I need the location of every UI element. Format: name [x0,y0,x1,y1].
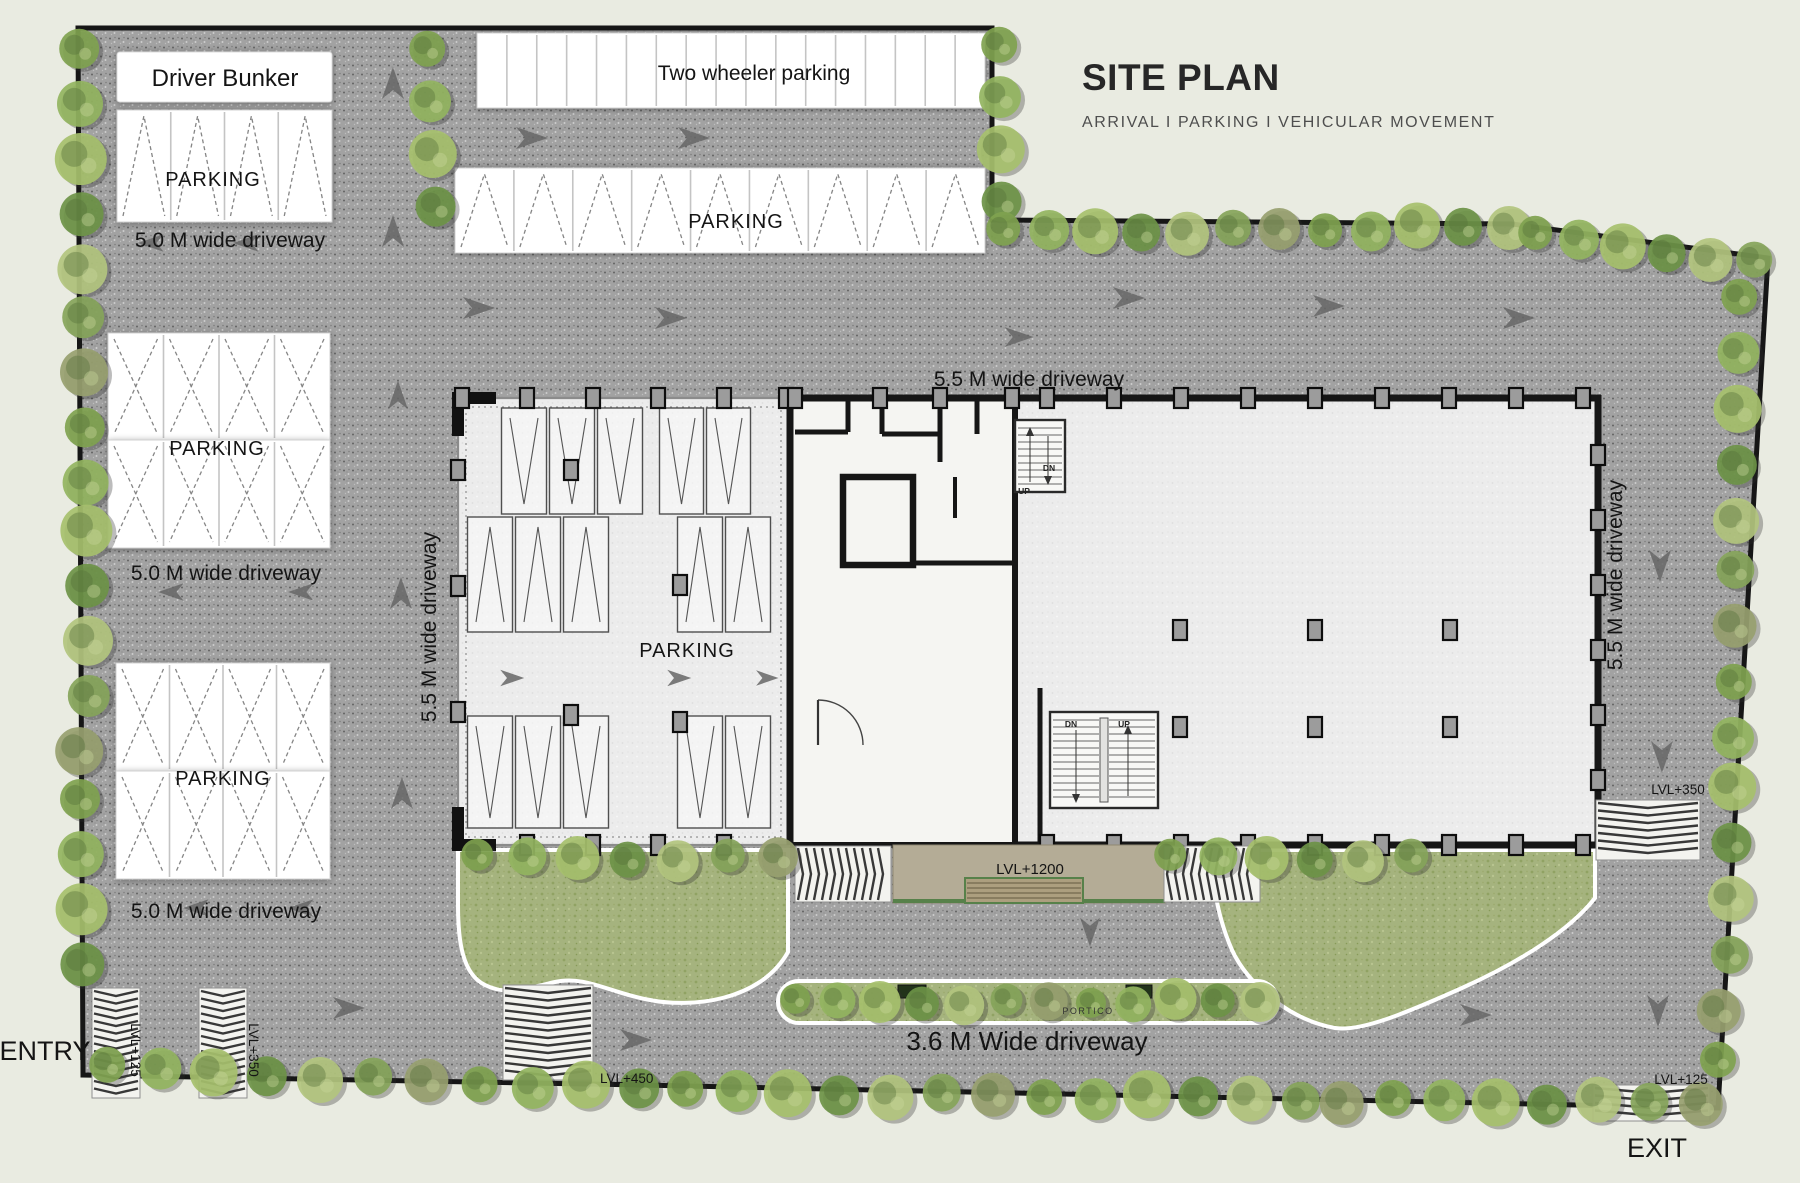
column [564,460,578,480]
parking-stalls [108,333,330,440]
parking-label-top-row: PARKING [688,211,784,233]
parking-stalls [116,663,330,771]
column [1107,388,1121,408]
ramp [795,846,891,902]
driveway-5-0-label-2: 5.0 M wide driveway [131,562,322,585]
column [1591,445,1605,465]
two-wheeler-parking-label: Two wheeler parking [658,62,851,85]
column [1005,388,1019,408]
column [520,388,534,408]
column [451,460,465,480]
portico-label: PORTICO [1062,1006,1113,1016]
level-450-label: LVL+450 [600,1071,653,1086]
stair-down-label-bottom: DN [1065,719,1077,729]
column [1509,388,1523,408]
column [1308,717,1322,737]
column [788,388,802,408]
driver-bunker-label: Driver Bunker [152,65,299,92]
level-350-entry-label: LVL+350 [246,1023,261,1076]
column [1173,717,1187,737]
column [586,388,600,408]
column [451,576,465,596]
column [1308,620,1322,640]
site-plan-drawing: SITE PLAN ARRIVAL I PARKING I VEHICULAR … [0,0,1800,1183]
column [1591,575,1605,595]
parking-label-row1: PARKING [165,169,261,191]
driveway-3-6-label: 3.6 M Wide driveway [906,1026,1147,1056]
exit-label: EXIT [1627,1133,1687,1163]
driveway-5-0-label-3: 5.0 M wide driveway [131,900,322,923]
column [1443,717,1457,737]
column [1174,388,1188,408]
stair-up-label-top: UP [1018,486,1030,496]
column [1591,510,1605,530]
page-title: SITE PLAN [1082,57,1280,98]
column [717,388,731,408]
column [451,702,465,722]
parking-stalls-indoor [468,517,609,632]
column [1173,620,1187,640]
ramp [1596,800,1700,860]
level-125-exit-label: LVL+125 [1654,1072,1707,1087]
buildings [451,388,1605,855]
column [933,388,947,408]
portico-steps [965,878,1083,903]
column [1576,388,1590,408]
column [1509,835,1523,855]
column [455,388,469,408]
column [1442,388,1456,408]
column [1040,388,1054,408]
column [1591,640,1605,660]
parking-label-building: PARKING [639,640,735,662]
column [1308,388,1322,408]
column [1591,705,1605,725]
page-subtitle: ARRIVAL I PARKING I VEHICULAR MOVEMENT [1082,114,1495,131]
level-1200-label: LVL+1200 [996,861,1064,878]
staircase [1015,420,1065,492]
driveway-5-5-label-top: 5.5 M wide driveway [934,368,1125,391]
column [1375,388,1389,408]
column [1443,620,1457,640]
level-350-right-label: LVL+350 [1651,782,1704,797]
column [1241,388,1255,408]
column [1442,835,1456,855]
stair-down-label-top: DN [1043,463,1055,473]
parking-stalls-indoor [468,716,609,828]
core-floor [790,398,1015,845]
column [673,575,687,595]
level-125-entry-label: LVL+125 [128,1023,143,1076]
driveway-5-0-label-1: 5.0 M wide driveway [135,229,326,252]
column [1591,770,1605,790]
parking-label-block2: PARKING [169,438,265,460]
column [564,705,578,725]
column [673,712,687,732]
column [651,388,665,408]
driveway-5-5-label-left: 5.5 M wide driveway [418,531,441,722]
column [873,388,887,408]
entry-label: ENTRY [0,1036,91,1066]
site-plan-page: SITE PLAN ARRIVAL I PARKING I VEHICULAR … [0,0,1800,1183]
parking-stalls [117,110,332,222]
stair-up-label-bottom: UP [1118,719,1130,729]
parking-label-block3: PARKING [175,768,271,790]
column [1576,835,1590,855]
driveway-5-5-label-right: 5.5 M wide driveway [1604,479,1627,670]
